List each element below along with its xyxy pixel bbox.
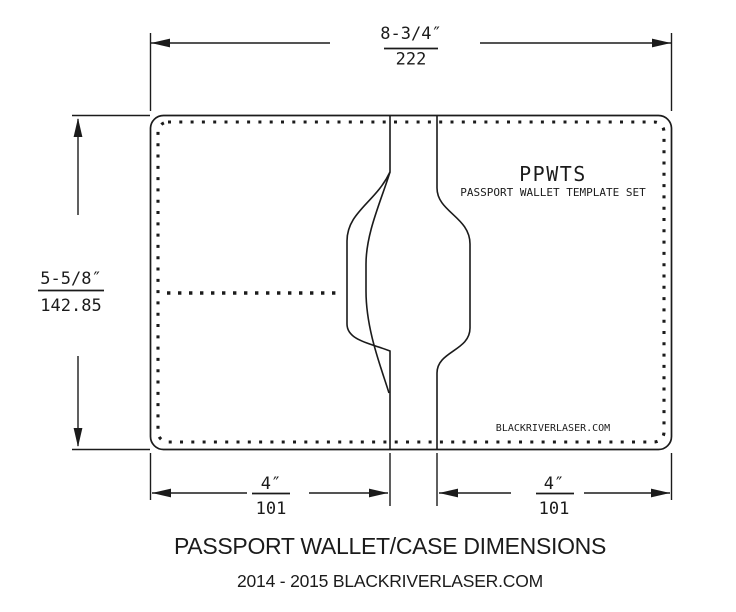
- spine-fold-right-line: [437, 116, 470, 450]
- dimension-inches-label: 8-3/4″: [380, 24, 441, 44]
- dimension-inches-label: 4″: [544, 474, 564, 494]
- passport-wallet-dimensions-page: 8-3/4″ 222 5-5/8″ 142.85 4″ 101: [0, 0, 736, 612]
- arrowhead-right-icon: [652, 39, 671, 48]
- passport-wallet-dimensions-drawing: 8-3/4″ 222 5-5/8″ 142.85 4″ 101: [0, 0, 736, 612]
- spine-fold-inner-curve: [366, 172, 390, 393]
- drawing-subtitle: 2014 - 2015 BLACKRIVERLASER.COM: [237, 571, 543, 591]
- brand-watermark: BLACKRIVERLASER.COM: [496, 423, 610, 434]
- dimension-mm-label: 101: [256, 499, 287, 519]
- arrowhead-up-icon: [74, 118, 83, 137]
- template-name-label: PASSPORT WALLET TEMPLATE SET: [460, 186, 646, 199]
- dimension-mm-label: 101: [539, 499, 570, 519]
- arrowhead-right-icon: [369, 489, 388, 498]
- arrowhead-left-icon: [152, 489, 171, 498]
- spine-fold-left-line: [347, 116, 390, 450]
- arrowhead-left-icon: [439, 489, 458, 498]
- bottom-right-dimension: 4″ 101: [437, 453, 672, 519]
- drawing-title: PASSPORT WALLET/CASE DIMENSIONS: [174, 533, 606, 559]
- dimension-mm-label: 222: [396, 50, 427, 70]
- wallet-outline: [151, 116, 672, 450]
- arrowhead-left-icon: [151, 39, 170, 48]
- dimension-inches-label: 5-5/8″: [40, 269, 101, 289]
- bottom-left-dimension: 4″ 101: [151, 453, 391, 519]
- stitch-holes-perimeter: [158, 122, 664, 442]
- dimension-inches-label: 4″: [261, 474, 281, 494]
- arrowhead-down-icon: [74, 428, 83, 447]
- arrowhead-right-icon: [651, 489, 670, 498]
- dimension-mm-label: 142.85: [40, 296, 101, 316]
- top-dimension: 8-3/4″ 222: [151, 24, 672, 111]
- left-dimension: 5-5/8″ 142.85: [38, 116, 150, 450]
- template-code-label: PPWTS: [519, 162, 587, 186]
